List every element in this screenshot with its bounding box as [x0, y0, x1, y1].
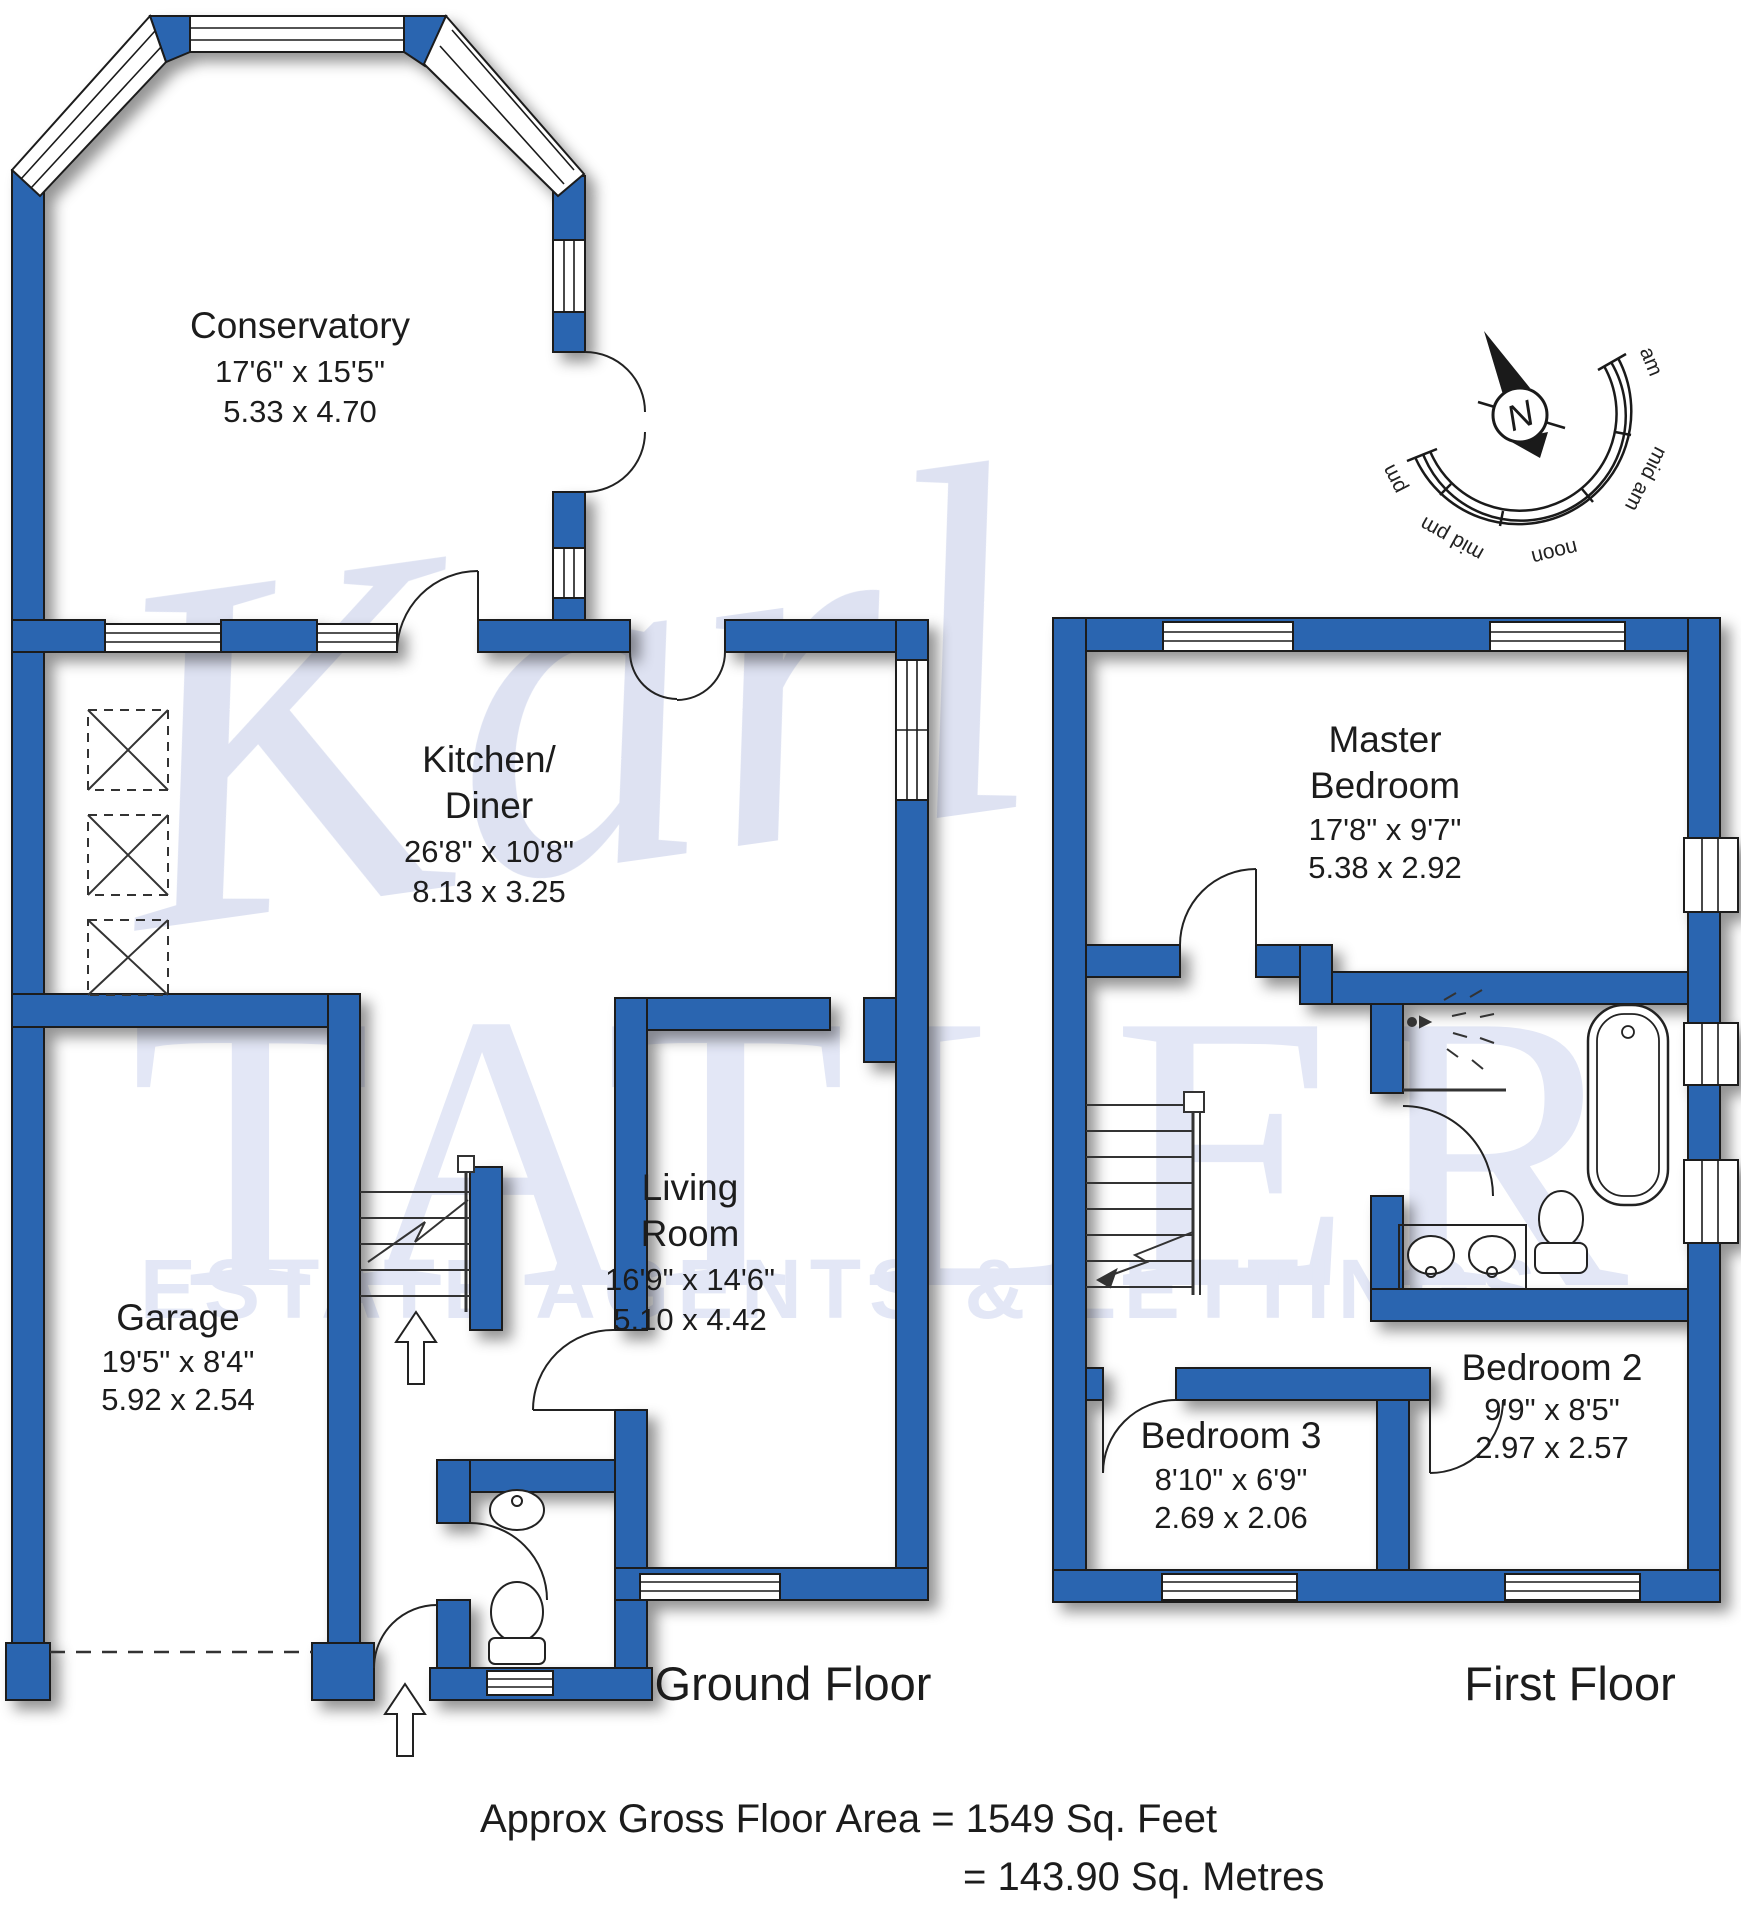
footer: Approx Gross Floor Area = 1549 Sq. Feet … — [480, 1797, 1324, 1899]
kitchen-label-1: Kitchen/ — [422, 739, 556, 780]
master-window-2 — [1490, 622, 1625, 651]
living-window-bottom — [640, 1574, 780, 1600]
bedroom2-window — [1505, 1574, 1640, 1600]
bedroom3-dim-metric: 2.69 x 2.06 — [1154, 1500, 1307, 1535]
sun-label-noon: noon — [1529, 535, 1580, 569]
right-wall-window-1 — [1684, 838, 1738, 912]
kitchen-label-2: Diner — [445, 785, 533, 826]
bedroom3-window — [1162, 1574, 1297, 1600]
sun-label-pm: pm — [1377, 461, 1411, 497]
sun-label-am: am — [1635, 344, 1667, 380]
conservatory-window-right-1 — [553, 240, 585, 312]
wc-toilet — [489, 1582, 545, 1664]
garage-dim-metric: 5.92 x 2.54 — [101, 1382, 254, 1417]
living-dim-metric: 5.10 x 4.42 — [613, 1302, 766, 1337]
bedroom3-label: Bedroom 3 — [1141, 1415, 1322, 1456]
kitchen-dim-imperial: 26'8" x 10'8" — [404, 834, 574, 869]
conservatory-window-diagonal-left — [12, 16, 166, 196]
conservatory-dim-imperial: 17'6" x 15'5" — [215, 354, 385, 389]
master-label-2: Bedroom — [1310, 765, 1460, 806]
first-toilet — [1535, 1191, 1587, 1273]
master-label-1: Master — [1328, 719, 1441, 760]
bedroom2-label: Bedroom 2 — [1462, 1347, 1643, 1388]
floorplan-page: Karl TATLER ESTATE AGENTS & LETTINGS — [0, 0, 1741, 1909]
bedroom3-dim-imperial: 8'10" x 6'9" — [1155, 1462, 1308, 1497]
wc-window-bottom — [487, 1671, 553, 1695]
garage-label: Garage — [116, 1297, 239, 1338]
kitchen-dim-metric: 8.13 x 3.25 — [412, 874, 565, 909]
conservatory-window-diagonal-right — [424, 16, 584, 196]
conservatory-door — [585, 352, 645, 412]
master-window-1 — [1163, 622, 1293, 651]
right-wall-window-3 — [1684, 1160, 1738, 1243]
footer-area-feet: Approx Gross Floor Area = 1549 Sq. Feet — [480, 1797, 1217, 1841]
conservatory-window-top — [190, 16, 404, 52]
kitchen-window-2 — [317, 624, 397, 652]
ground-floor-title: Ground Floor — [655, 1657, 932, 1710]
sun-label-mid-pm: mid pm — [1416, 512, 1487, 565]
sun-label-mid-am: mid am — [1620, 443, 1672, 515]
master-dim-metric: 5.38 x 2.92 — [1308, 850, 1461, 885]
footer-area-metres: = 143.90 Sq. Metres — [963, 1855, 1324, 1899]
right-wall-window-2 — [1684, 1023, 1738, 1085]
living-label-2: Room — [641, 1213, 740, 1254]
entrance-arrow — [385, 1684, 425, 1756]
living-label-1: Living — [642, 1167, 739, 1208]
wc-sink — [490, 1490, 544, 1530]
conservatory-window-right-2 — [553, 548, 585, 598]
compass-rose: N am mid am noon mid pm pm — [1377, 331, 1671, 569]
front-door — [374, 1605, 437, 1668]
garage-dim-imperial: 19'5" x 8'4" — [102, 1344, 255, 1379]
bedroom2-dim-imperial: 9'9" x 8'5" — [1484, 1392, 1620, 1427]
conservatory-label: Conservatory — [190, 305, 411, 346]
kitchen-window-1 — [105, 624, 221, 652]
master-dim-imperial: 17'8" x 9'7" — [1309, 812, 1462, 847]
bedroom2-dim-metric: 2.97 x 2.57 — [1475, 1430, 1628, 1465]
first-floor-title: First Floor — [1464, 1657, 1676, 1710]
floorplan-svg: Karl TATLER ESTATE AGENTS & LETTINGS — [0, 0, 1741, 1909]
bathtub — [1588, 1005, 1668, 1205]
living-dim-imperial: 16'9" x 14'6" — [605, 1262, 775, 1297]
conservatory-dim-metric: 5.33 x 4.70 — [223, 394, 376, 429]
